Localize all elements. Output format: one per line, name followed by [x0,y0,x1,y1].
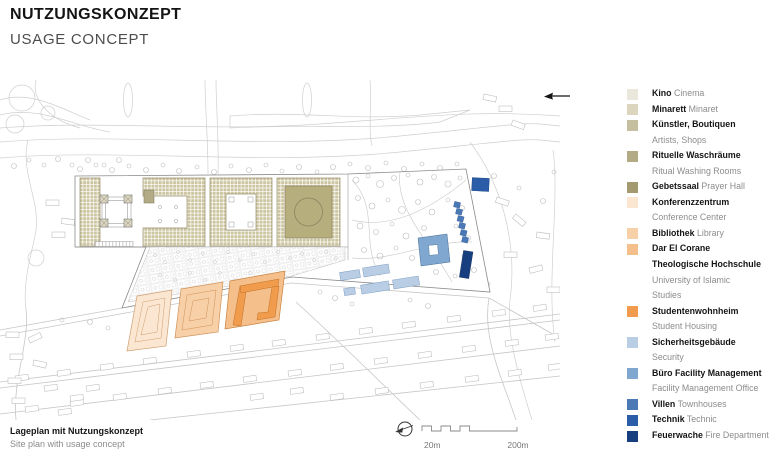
legend-entry-bibliothek: Bibliothek Library [627,226,780,242]
legend-label: Theologische Hochschule [652,257,780,273]
site-plan [0,80,560,420]
legend-label: Studies [652,288,780,304]
legend-label: Ritual Washing Rooms [652,164,780,180]
scale-bar-graphic [422,426,517,431]
legend-label: Facility Management Office [652,381,780,397]
legend-label: Conference Center [652,210,780,226]
legend-swatch-gebetssaal [627,182,638,193]
legend-entry-sicherheitsgebaeude: SicherheitsgebäudeSecurity [627,335,780,366]
legend: Kino CinemaMinarett MinaretKünstler, Bou… [627,86,780,444]
caption: Lageplan mit Nutzungskonzept Site plan w… [10,425,143,451]
legend-label: Student Housing [652,319,780,335]
page-title: NUTZUNGSKONZEPT [10,6,181,24]
legend-swatch-feuerwache [627,431,638,442]
page-subtitle: USAGE CONCEPT [10,31,149,48]
legend-label: Rituelle Waschräume [652,148,780,164]
legend-entry-minarett: Minarett Minaret [627,102,780,118]
legend-swatch-sicherheitsgebaeude [627,337,638,348]
usage-concept-board: { "header": { "title_de": "NUTZUNGSKONZE… [0,0,780,470]
legend-entry-feuerwache: Feuerwache Fire Department [627,428,780,444]
prayer-hall-building [277,178,340,246]
legend-entry-kino: Kino Cinema [627,86,780,102]
legend-entry-technik: Technik Technic [627,412,780,428]
legend-label: Kino Cinema [652,86,780,102]
legend-swatch-minarett [627,104,638,115]
library-building [175,282,223,338]
arcade-building [80,178,100,246]
legend-entry-gebetssaal: Gebetssaal Prayer Hall [627,179,780,195]
stairs [95,242,133,247]
north-arrow-icon [395,422,413,436]
scale-bar: 20m 200m [392,417,562,457]
legend-entry-konferenzzentrum: KonferenzzentrumConference Center [627,195,780,226]
caption-de: Lageplan mit Nutzungskonzept [10,425,143,438]
legend-entry-dar_el_corane: Dar El CoraneTheologische HochschuleUniv… [627,241,780,303]
legend-entry-kuenstler: Künstler, BoutiquenArtists, Shops [627,117,780,148]
legend-label: Security [652,350,780,366]
legend-label: Technik Technic [652,412,780,428]
legend-label: Künstler, Boutiquen [652,117,780,133]
legend-label: Bibliothek Library [652,226,780,242]
legend-swatch-buero_fm [627,368,638,379]
legend-swatch-villen [627,399,638,410]
caption-en: Site plan with usage concept [10,438,143,451]
legend-label: University of Islamic [652,273,780,289]
legend-label: Minarett Minaret [652,102,780,118]
legend-label: Gebetssaal Prayer Hall [652,179,780,195]
legend-label: Büro Facility Management [652,366,780,382]
scale-label-20m: 20m [424,440,441,450]
legend-entry-buero_fm: Büro Facility ManagementFacility Managem… [627,366,780,397]
legend-swatch-studentenwohnheim [627,306,638,317]
legend-swatch-waschraeume [627,151,638,162]
legend-entry-villen: Villen Townhouses [627,397,780,413]
legend-label: Sicherheitsgebäude [652,335,780,351]
legend-label: Studentenwohnheim [652,304,780,320]
technik-building [472,178,490,192]
legend-label: Konferenzzentrum [652,195,780,211]
legend-swatch-kuenstler [627,120,638,131]
legend-swatch-technik [627,415,638,426]
legend-swatch-dar_el_corane [627,244,638,255]
scale-label-200m: 200m [507,440,528,450]
legend-entry-waschraeume: Rituelle WaschräumeRitual Washing Rooms [627,148,780,179]
courtyard-building-middle [210,178,272,246]
legend-label: Villen Townhouses [652,397,780,413]
legend-label: Dar El Corane [652,241,780,257]
legend-entry-studentenwohnheim: StudentenwohnheimStudent Housing [627,304,780,335]
legend-swatch-kino [627,89,638,100]
facility-management-building [418,234,450,266]
legend-label: Artists, Shops [652,133,780,149]
legend-swatch-konferenzzentrum [627,197,638,208]
legend-label: Feuerwache Fire Department [652,428,780,444]
legend-swatch-bibliothek [627,228,638,239]
